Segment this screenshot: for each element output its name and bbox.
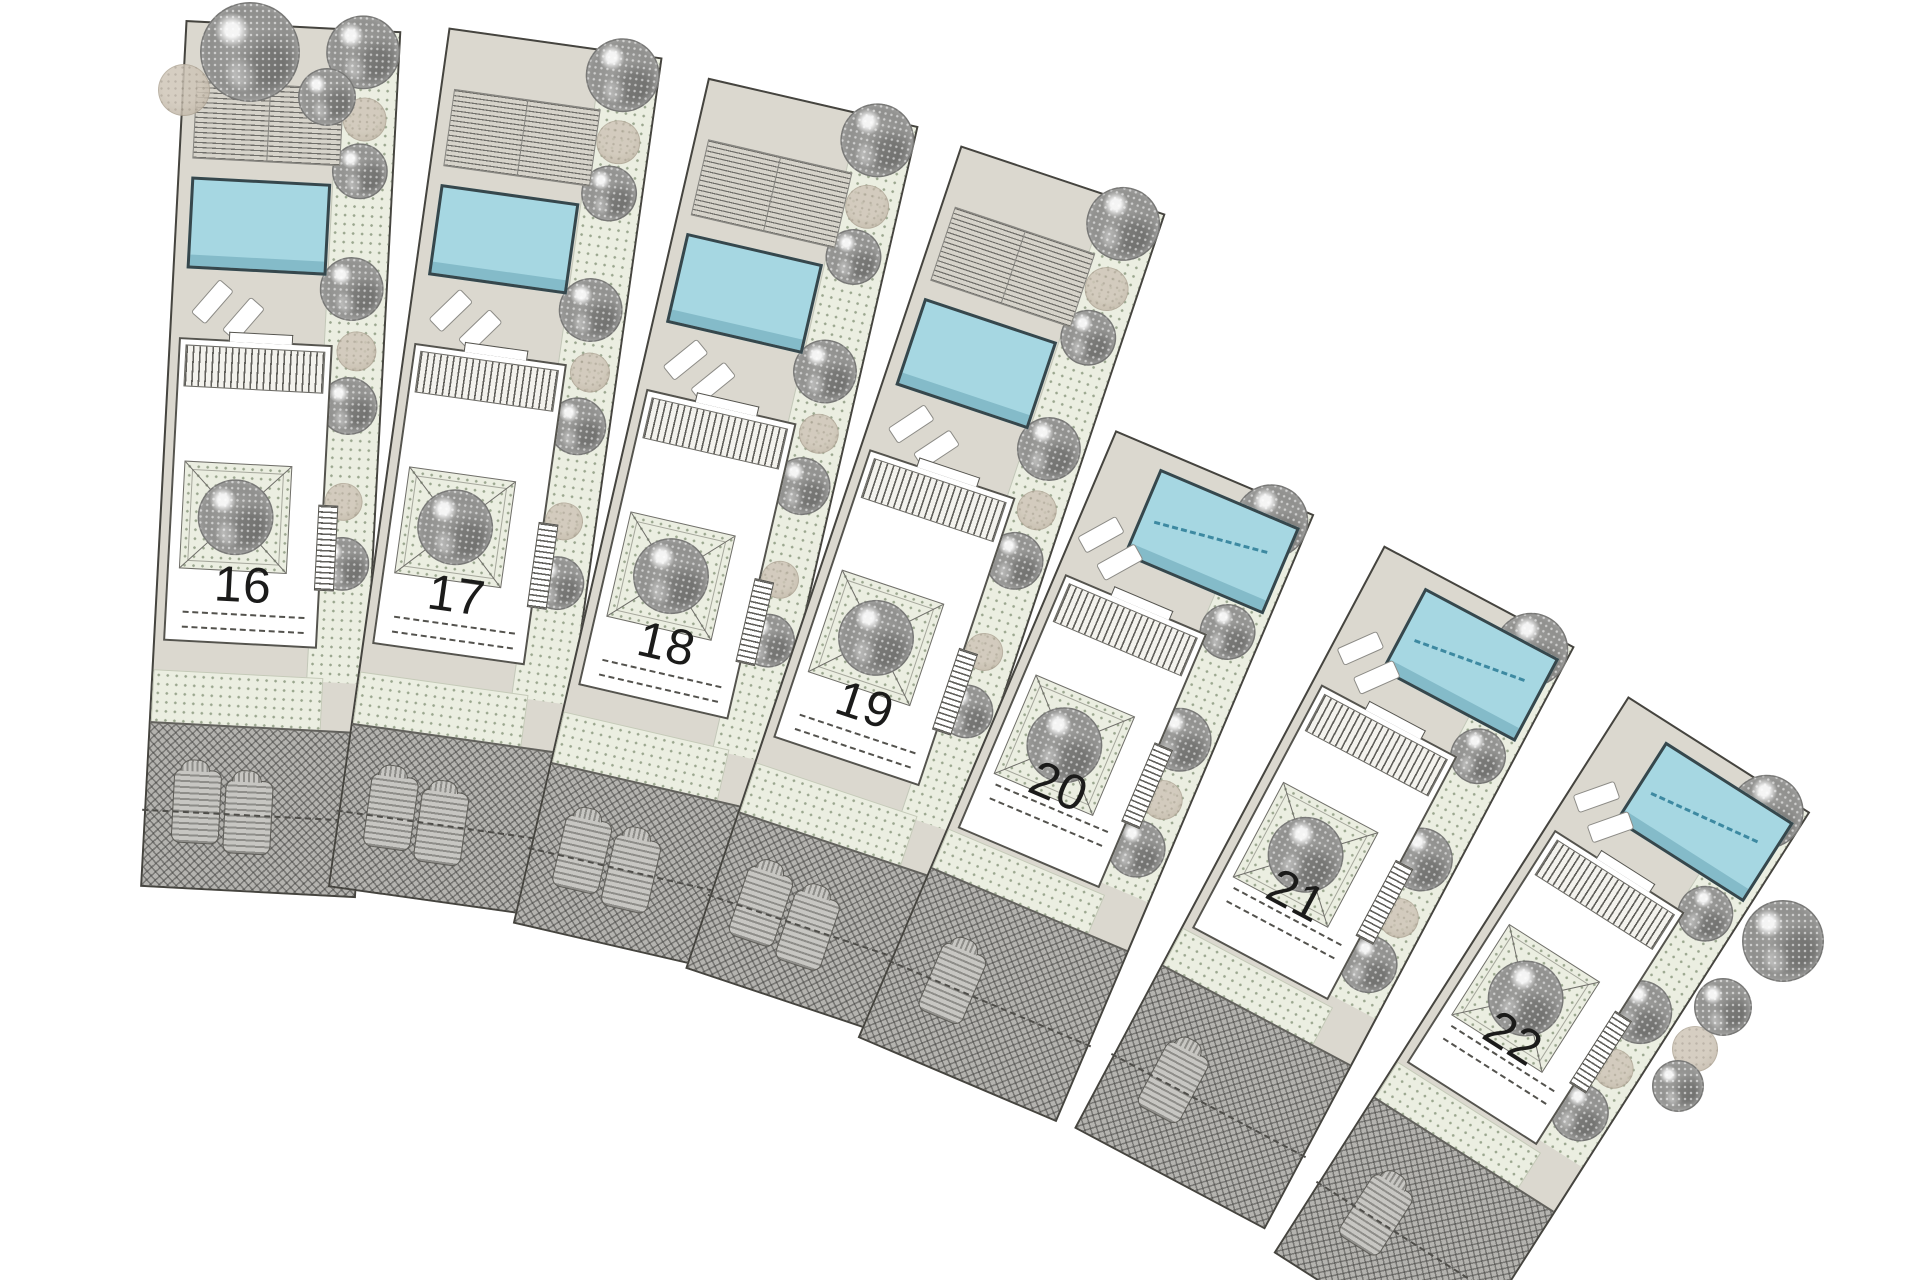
tree-icon: [318, 255, 385, 322]
timber-deck: [691, 139, 853, 248]
villa-building: 16: [163, 337, 333, 649]
swimming-pool: [666, 233, 823, 354]
tree-icon: [1694, 978, 1752, 1036]
pergola-roof: [415, 351, 559, 412]
setback-dashed-line: [599, 673, 718, 702]
pool-waterline-dashes: [1154, 520, 1268, 553]
shrub-icon: [593, 117, 643, 167]
sun-lounger-icon: [191, 279, 234, 325]
shrub-icon: [335, 330, 377, 372]
shrub-icon: [158, 64, 210, 116]
tree-icon: [298, 68, 356, 126]
sun-lounger-icon: [662, 339, 708, 381]
sun-lounger-icon: [1096, 543, 1144, 581]
sun-lounger-icon: [428, 288, 473, 332]
setback-dashed-line: [182, 626, 304, 634]
tree-icon: [1652, 1060, 1704, 1112]
car-icon: [171, 768, 223, 844]
pergola-roof: [642, 397, 788, 469]
car-icon: [362, 772, 420, 852]
lot-number: 17: [379, 560, 534, 630]
timber-deck: [443, 89, 600, 187]
sun-lounger-icon: [1336, 631, 1384, 666]
car-icon: [1336, 1171, 1416, 1259]
sun-lounger-icon: [1353, 660, 1401, 695]
shrub-icon: [1011, 485, 1062, 536]
sun-lounger-icon: [888, 404, 935, 444]
sun-lounger-icon: [1573, 781, 1621, 814]
shrub-icon: [795, 410, 843, 458]
tree-icon: [581, 33, 665, 117]
pool-waterline-dashes: [1414, 639, 1525, 682]
lot-number: 16: [167, 556, 319, 614]
sun-lounger-icon: [1587, 811, 1635, 844]
swimming-pool: [428, 184, 579, 295]
tree-icon: [1742, 900, 1824, 982]
sun-lounger-icon: [1077, 516, 1125, 554]
tree-icon: [200, 2, 300, 102]
shrub-icon: [567, 350, 612, 395]
car-icon: [1135, 1038, 1212, 1126]
swimming-pool: [187, 177, 332, 276]
pool-waterline-dashes: [1650, 792, 1758, 843]
setback-dashed-line: [392, 631, 513, 650]
site-plan: 16: [0, 0, 1920, 1280]
roof-step: [229, 332, 293, 345]
car-icon: [916, 940, 989, 1027]
pergola-roof: [183, 344, 325, 393]
